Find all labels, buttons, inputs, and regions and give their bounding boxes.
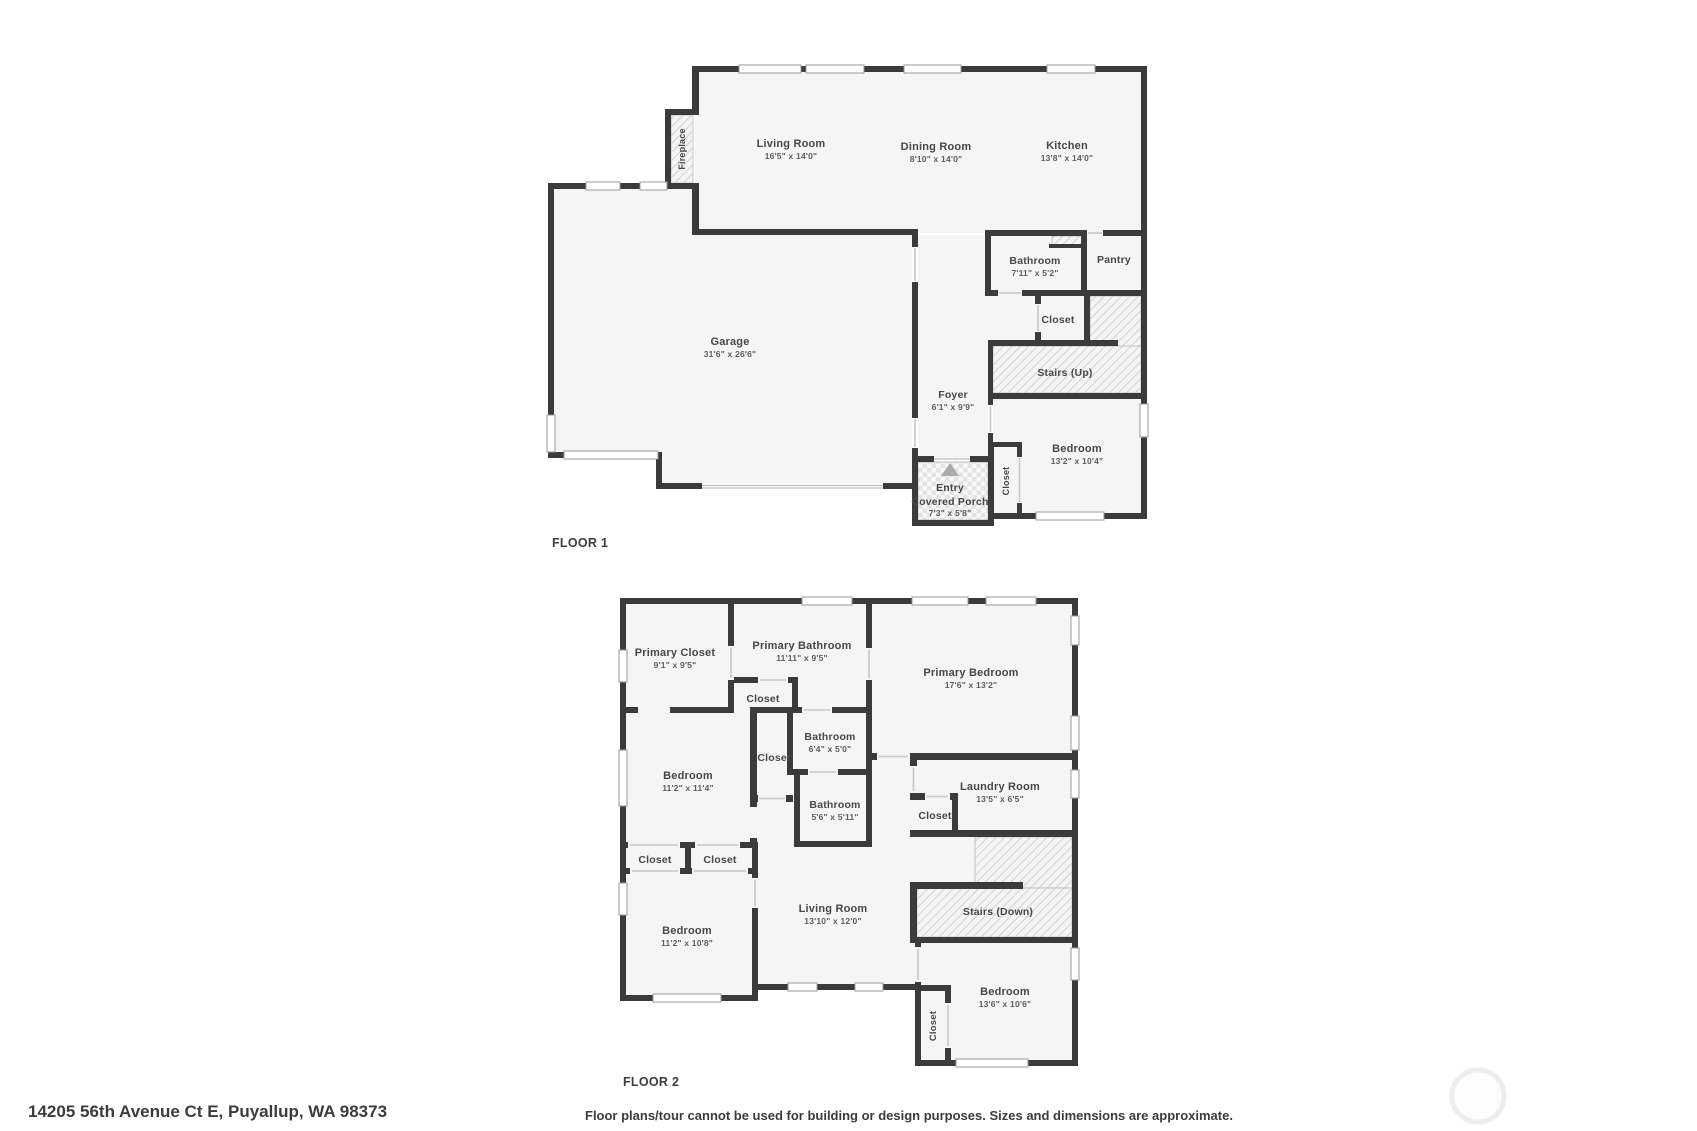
garage-dims: 31'6" x 26'6" <box>704 349 757 359</box>
bedroom-lb-dims: 11'2" x 10'8" <box>661 938 713 948</box>
bedroom-lt-label: Bedroom <box>663 770 713 782</box>
stairs-up-hatch-upper <box>1090 296 1141 346</box>
floorplan-drawing: Living Room 16'5" x 14'0" Dining Room 8'… <box>0 0 1697 1131</box>
foyer-label: Foyer <box>938 389 968 401</box>
bedroom-right-closet-label: Closet <box>928 1010 939 1041</box>
primary-closet-label: Primary Closet <box>635 647 716 659</box>
garage-label: Garage <box>710 336 749 348</box>
closet-hall-label: Closet <box>757 752 791 764</box>
entry-label: Entry <box>936 482 964 494</box>
bathroom-mid-dims: 5'6" x 5'11" <box>811 812 858 822</box>
primary-bathroom-dims: 11'11" x 9'5" <box>776 653 828 663</box>
bathroom-small-label: Bathroom <box>804 731 855 743</box>
floorplan-page: Living Room 16'5" x 14'0" Dining Room 8'… <box>0 0 1697 1131</box>
floor1-plan: Living Room 16'5" x 14'0" Dining Room 8'… <box>547 65 1148 526</box>
pantry-label: Pantry <box>1097 254 1131 266</box>
bathroom-mid-label: Bathroom <box>809 799 860 811</box>
primary-bedroom-label: Primary Bedroom <box>923 667 1018 679</box>
bedroom-closet-f1-label: Closet <box>1001 467 1011 496</box>
primary-closet-dims: 9'1" x 9'5" <box>654 660 697 670</box>
bedroom-f1-label: Bedroom <box>1052 443 1102 455</box>
kitchen-label: Kitchen <box>1046 140 1088 152</box>
living-room-label: Living Room <box>757 138 826 150</box>
living-room-dims: 16'5" x 14'0" <box>765 151 818 161</box>
disclaimer: Floor plans/tour cannot be used for buil… <box>585 1108 1233 1123</box>
covered-porch-label: Covered Porch <box>911 496 988 508</box>
address: 14205 56th Avenue Ct E, Puyallup, WA 983… <box>28 1102 387 1122</box>
bedroom-f1-dims: 13'2" x 10'4" <box>1051 456 1104 466</box>
floor2-title: FLOOR 2 <box>623 1075 679 1089</box>
chase-hatch <box>1052 236 1082 245</box>
closet-f1-label: Closet <box>1041 314 1075 326</box>
closet-b-label: Closet <box>703 854 737 866</box>
bedroom-lt-dims: 11'2" x 11'4" <box>662 783 714 793</box>
bathroom-f1-label: Bathroom <box>1009 255 1060 267</box>
stairs-down-hatch-upper <box>975 837 1072 888</box>
fireplace-label: Fireplace <box>677 128 687 169</box>
living-room-f2-label: Living Room <box>799 903 868 915</box>
laundry-dims: 13'5" x 6'5" <box>976 794 1024 804</box>
closet-top-label: Closet <box>746 693 780 705</box>
bathroom-f1-dims: 7'11" x 5'2" <box>1011 268 1058 278</box>
bedroom-right-label: Bedroom <box>980 986 1030 998</box>
covered-porch-dims: 7'3" x 5'8" <box>929 508 972 518</box>
stairs-up-label: Stairs (Up) <box>1037 367 1092 379</box>
laundry-label: Laundry Room <box>960 781 1040 793</box>
dining-room-dims: 8'10" x 14'0" <box>910 154 963 164</box>
bedroom-lb-label: Bedroom <box>662 925 712 937</box>
bedroom-right-dims: 13'6" x 10'6" <box>979 999 1032 1009</box>
floor1-title: FLOOR 1 <box>552 536 608 550</box>
closet-a-label: Closet <box>638 854 672 866</box>
kitchen-dims: 13'8" x 14'0" <box>1041 153 1094 163</box>
watermark-circle <box>1452 1070 1504 1122</box>
laundry-closet-label: Closet <box>918 810 952 822</box>
living-room-f2-dims: 13'10" x 12'0" <box>804 916 861 926</box>
primary-bedroom-dims: 17'6" x 13'2" <box>945 680 998 690</box>
floor2-plan: Primary Closet 9'1" x 9'5" Primary Bathr… <box>619 597 1079 1067</box>
primary-bathroom-label: Primary Bathroom <box>752 640 851 652</box>
foyer-dims: 6'1" x 9'9" <box>932 402 975 412</box>
stairs-down-label: Stairs (Down) <box>963 906 1033 918</box>
bathroom-small-dims: 6'4" x 5'0" <box>809 744 852 754</box>
dining-room-label: Dining Room <box>901 141 972 153</box>
